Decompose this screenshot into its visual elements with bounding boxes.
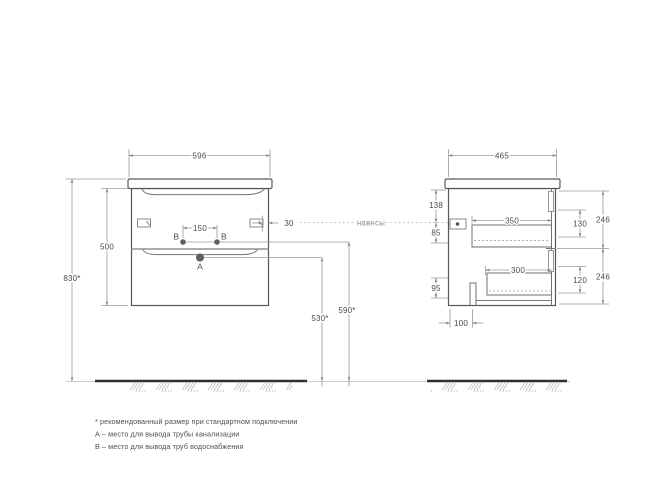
technical-drawing-page: B B A 596 500 830* 150 30 530* 590 <box>0 0 667 500</box>
label-water-left: B <box>173 232 179 242</box>
hanger-offset-dim: 30 <box>284 219 294 228</box>
water-point-left <box>180 239 186 245</box>
footnotes: * рекомендованный размер при стандартном… <box>95 417 298 451</box>
drawer1-opening-dim: 350 <box>505 217 519 226</box>
water-point-right <box>214 239 220 245</box>
hanger-to-drawer-dim: 85 <box>431 229 441 238</box>
drawer1-inner-dim: 130 <box>573 220 587 229</box>
front-width-dim: 596 <box>193 152 207 161</box>
side-countertop <box>445 179 560 189</box>
back-offset-dim: 100 <box>454 319 468 328</box>
floor <box>66 381 570 392</box>
side-hanger <box>450 219 466 229</box>
side-drawer1-front <box>549 192 554 212</box>
tap-spacing-dim: 150 <box>193 224 207 233</box>
drawer2-inner-dim: 120 <box>573 276 587 285</box>
drawer1-front-dim: 246 <box>596 216 610 225</box>
front-total-height-dim: 830* <box>63 274 80 283</box>
side-view <box>445 179 560 306</box>
hanger-from-top-dim: 138 <box>429 201 443 210</box>
hangers-annotation: навесы <box>300 219 466 228</box>
water-height-dim: 590* <box>338 306 355 315</box>
front-hanger-left <box>138 219 151 227</box>
side-drawer2-box <box>487 273 552 295</box>
footnote-recommended-size: * рекомендованный размер при стандартном… <box>95 417 298 426</box>
footnote-water-outlet: В – место для вывода труб водоснабжения <box>95 442 244 451</box>
drain-height-dim: 530* <box>311 314 328 323</box>
front-cabinet-body <box>132 189 269 306</box>
label-drain: A <box>197 262 203 272</box>
front-countertop <box>128 179 272 189</box>
front-height-dim: 500 <box>100 243 114 252</box>
floor-hatch-front <box>128 383 292 392</box>
footnote-drain-outlet: А – место для вывода трубы канализации <box>95 430 239 439</box>
drawer2-front-dim: 246 <box>596 273 610 282</box>
hangers-label: навесы <box>357 219 385 228</box>
side-depth-dim: 465 <box>495 152 509 161</box>
technical-drawing-canvas: B B A 596 500 830* 150 30 530* 590 <box>0 0 667 500</box>
drain-point <box>196 254 204 262</box>
front-view: B B A <box>128 179 349 306</box>
side-drawer1-box <box>472 225 552 247</box>
side-drawer2-front <box>549 251 554 272</box>
floor-hatch-side <box>430 383 562 392</box>
drawer2-opening-dim: 300 <box>511 266 525 275</box>
lower-clearance-dim: 95 <box>431 284 441 293</box>
label-water-right: B <box>221 232 227 242</box>
